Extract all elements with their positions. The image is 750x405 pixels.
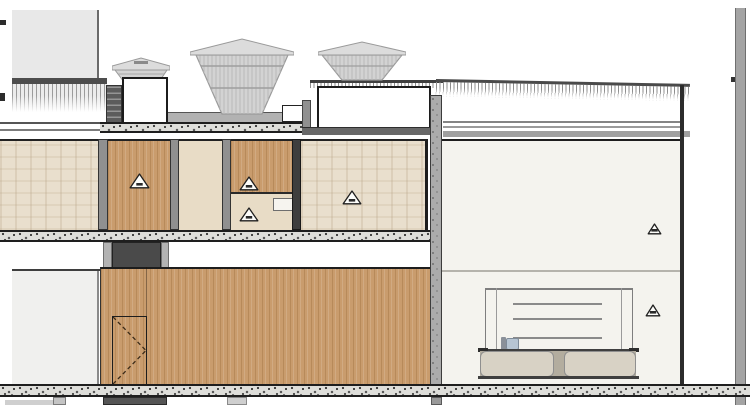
headboard-stile-left xyxy=(485,288,497,352)
foundation-pillar-1 xyxy=(53,397,66,405)
shaft-pillar-right xyxy=(161,242,169,268)
rooftop-plant-box-left xyxy=(122,77,168,123)
room-right-border xyxy=(680,85,684,397)
shaft-pillar-left xyxy=(103,242,112,268)
wall-mullion-3 xyxy=(222,139,231,230)
lower-left-wall-edge xyxy=(97,271,99,385)
right-ceiling-line-1 xyxy=(443,121,680,123)
cabinet-box-left xyxy=(480,351,554,377)
foundation-dark-block xyxy=(103,397,167,405)
ventilation-cowl-large-2 xyxy=(318,40,406,82)
left-ceiling-line-1 xyxy=(0,122,100,124)
background-building-mass xyxy=(12,10,98,80)
clerestory-column-left xyxy=(302,100,311,130)
door-swing-symbol xyxy=(113,317,146,384)
left-edge-tick-upper xyxy=(0,20,6,25)
cabinet-base-line xyxy=(478,376,639,379)
room-upper-left xyxy=(0,139,98,230)
clerestory-box xyxy=(317,86,431,127)
lower-left-wall xyxy=(12,271,98,385)
far-right-column xyxy=(735,8,746,405)
mid-slab-band xyxy=(0,230,442,242)
section-drawing-canvas xyxy=(0,0,750,405)
room-wood-2-upper xyxy=(231,139,292,192)
ceiling-band-dark xyxy=(302,127,442,135)
cabinet-box-right xyxy=(564,351,636,377)
room-upper-large xyxy=(301,139,428,230)
headboard-stile-right xyxy=(621,288,633,352)
room-light-narrow xyxy=(179,139,222,230)
left-edge-tick-lower xyxy=(0,93,5,101)
left-ceiling-line-2 xyxy=(0,129,100,131)
wall-mullion-2 xyxy=(170,139,179,230)
wall-fixture-box xyxy=(273,198,293,211)
cladding-fade-overlay xyxy=(12,84,107,113)
far-right-column-tick xyxy=(731,77,735,82)
louver-stack xyxy=(106,85,122,125)
foundation-pillar-3 xyxy=(431,397,442,405)
concrete-column xyxy=(430,95,442,397)
cowl-label-mark xyxy=(134,61,148,64)
headboard-slat-3 xyxy=(513,337,602,339)
headboard-top-line xyxy=(485,288,633,290)
wall-solid-dark xyxy=(292,139,301,230)
ground-slab-band xyxy=(0,384,750,397)
right-roof-sloped xyxy=(436,79,690,106)
headboard-slat-2 xyxy=(513,318,602,320)
foundation-bar-left xyxy=(5,400,53,405)
lower-wood-wall xyxy=(100,267,430,385)
right-ceiling-band xyxy=(443,131,690,137)
foundation-pillar-2 xyxy=(227,397,247,405)
room-right-dado-line xyxy=(442,270,680,272)
upper-slab-speckle xyxy=(100,122,310,133)
wall-mullion-1 xyxy=(98,139,108,230)
right-ceiling-line-2 xyxy=(443,126,680,128)
ventilation-cowl-large-1 xyxy=(190,36,294,118)
shaft-dark-block xyxy=(112,242,161,268)
room-wood-1 xyxy=(108,139,170,230)
headboard-slat-1 xyxy=(513,303,602,305)
